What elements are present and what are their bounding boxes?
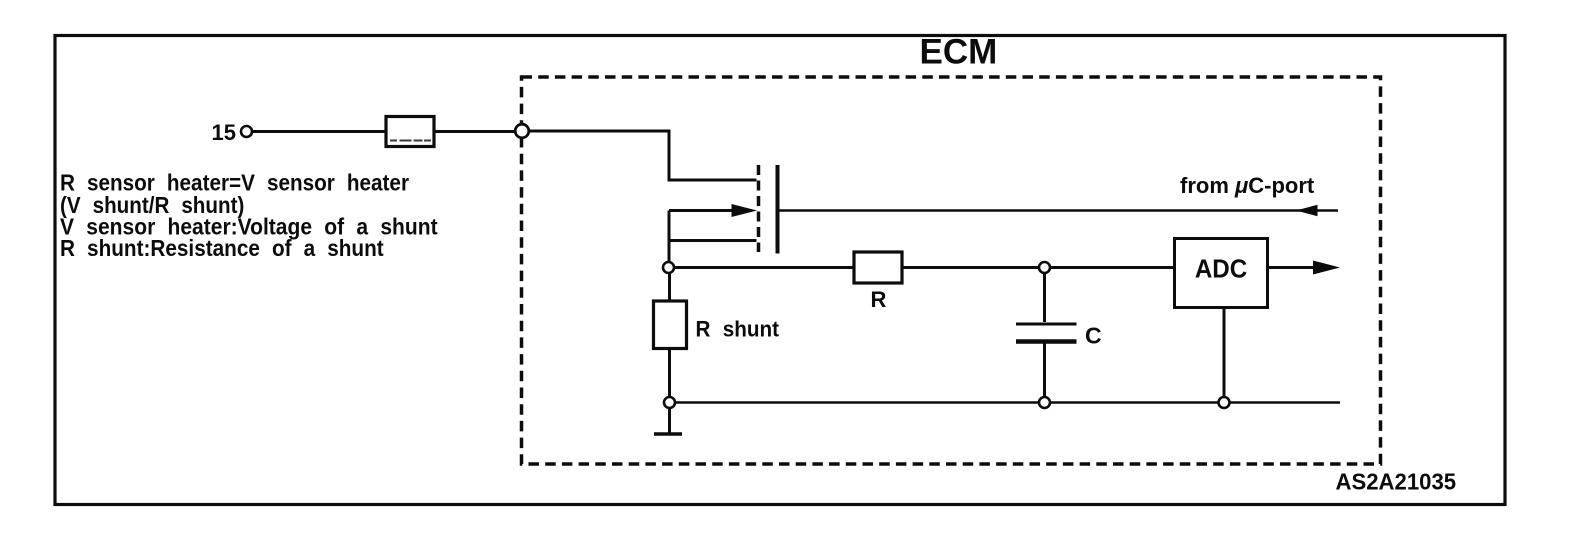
- svg-text:R shunt: R shunt: [696, 317, 780, 342]
- svg-text:R: R: [871, 287, 887, 312]
- svg-text:ADC: ADC: [1195, 255, 1247, 284]
- svg-text:C: C: [1085, 323, 1102, 349]
- svg-text:R shunt:Resistance of a shunt: R shunt:Resistance of a shunt: [60, 235, 384, 261]
- svg-text:from μC-port: from μC-port: [1180, 173, 1315, 198]
- svg-text:ECM: ECM: [920, 33, 998, 72]
- svg-text:15: 15: [212, 120, 236, 145]
- svg-text:AS2A21035: AS2A21035: [1336, 469, 1457, 494]
